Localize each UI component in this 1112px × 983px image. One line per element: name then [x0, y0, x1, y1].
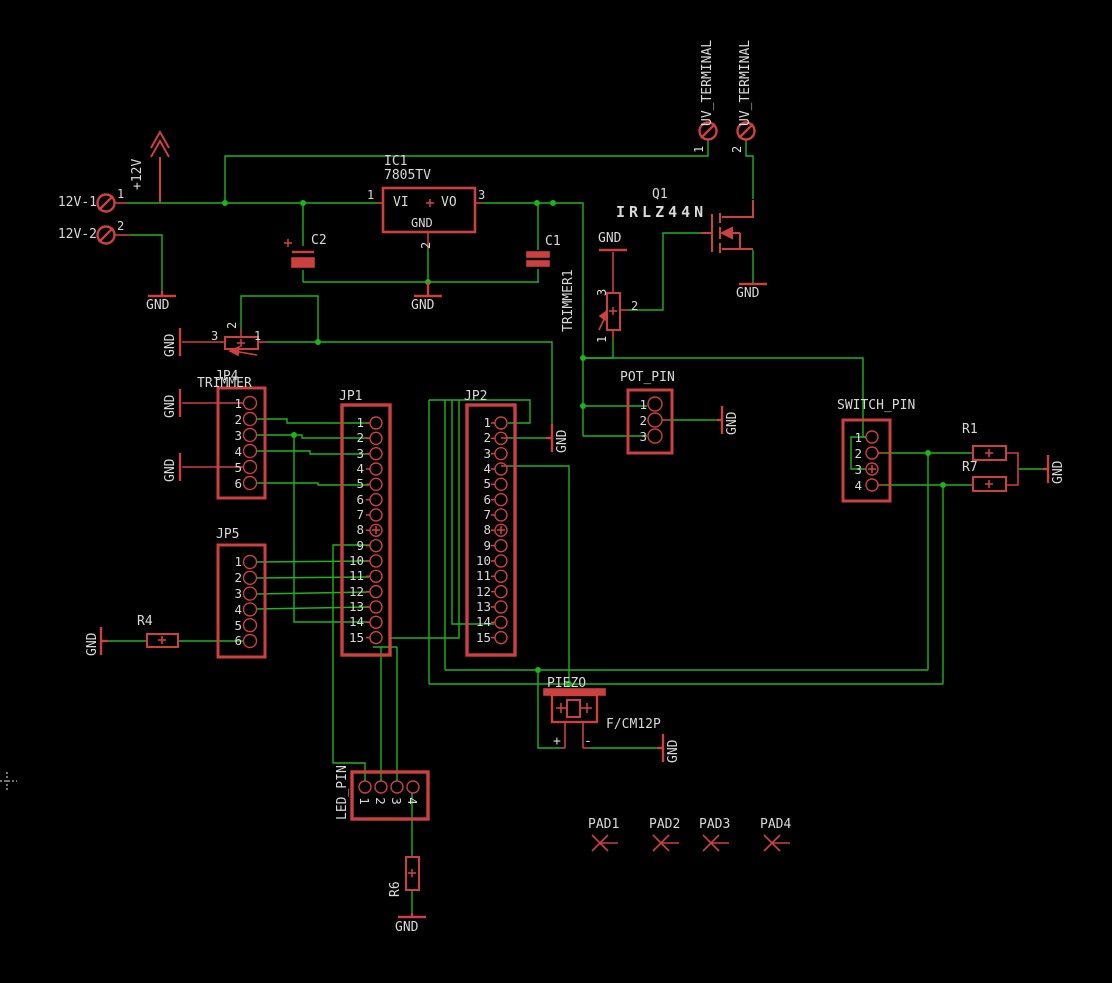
gnd-label: GND: [146, 299, 169, 313]
pin-number: 3: [356, 446, 364, 461]
jp1-name: JP1: [339, 390, 362, 404]
uv-terminal2-pin: 2: [731, 146, 744, 153]
gnd-label: GND: [598, 232, 621, 246]
origin-crosshair: [0, 772, 17, 791]
r1-name: R1: [962, 423, 978, 437]
wires[interactable]: [108, 140, 1043, 913]
pin-number: 6: [234, 475, 242, 491]
gnd-label: GND: [164, 334, 178, 357]
pin-number: 6: [356, 492, 364, 507]
gnd-label: GND: [395, 921, 418, 935]
pin-number: 3: [483, 446, 491, 461]
jp5-name: JP5: [216, 528, 239, 542]
jp4-value: TRIMMER: [197, 377, 252, 391]
jp4-connector[interactable]: [182, 388, 265, 498]
c2-name: C2: [311, 234, 327, 248]
pin-number: 11: [349, 568, 364, 583]
pin-number: 4: [483, 461, 491, 476]
pad1-mark[interactable]: [592, 835, 618, 851]
supply-12v-symbol[interactable]: [151, 132, 169, 203]
r6-resistor[interactable]: [406, 857, 419, 891]
gnd-label: GND: [1052, 461, 1066, 484]
pad3-label: PAD3: [699, 818, 730, 832]
supply-12v-label: +12V: [131, 159, 145, 190]
terminal-12v2-pin: 2: [117, 220, 124, 233]
jp4-pin-numbers: 123456: [226, 395, 242, 491]
r4-resistor[interactable]: [146, 634, 178, 647]
pad4-mark[interactable]: [764, 835, 790, 851]
q1-value: IRLZ44N: [616, 205, 707, 219]
r7-resistor[interactable]: [971, 453, 1018, 491]
pin-number: 1: [483, 415, 491, 430]
c2-capacitor[interactable]: [284, 239, 314, 267]
junction-dots: [222, 200, 946, 687]
jp2-pin-numbers: 123456789101112131415: [471, 415, 491, 645]
terminal-12v2-label: 12V-2: [55, 228, 97, 242]
jp2-name: JP2: [464, 390, 487, 404]
pot-pin-numbers: 123: [633, 396, 647, 444]
ic1-gnd-pin: GND: [411, 217, 433, 230]
jp4-trimmer-pin3-num: 3: [211, 330, 218, 343]
gnd-label: GND: [726, 412, 740, 435]
terminal-12v2[interactable]: [98, 227, 131, 244]
pin-number: 9: [483, 538, 491, 553]
pin-number: 10: [349, 553, 364, 568]
pin-number: 8: [356, 522, 364, 537]
pin-number: 3: [234, 427, 242, 443]
pin-number: 8: [483, 522, 491, 537]
ic1-name: IC1: [384, 155, 407, 169]
pin-number: 5: [234, 459, 242, 475]
pin-number: 13: [476, 599, 491, 614]
r7-name: R7: [962, 461, 978, 475]
pad1-label: PAD1: [588, 818, 619, 832]
pin-number: 1: [234, 395, 242, 411]
pin-number: 10: [476, 553, 491, 568]
pin-number: 14: [476, 614, 491, 629]
pin-number: 4: [356, 461, 364, 476]
trimmer1-pin3-num: 3: [596, 289, 609, 296]
pin-number: 2: [854, 445, 862, 461]
trimmer1-pin2-num: 2: [631, 300, 638, 313]
c1-name: C1: [545, 235, 561, 249]
r6-name: R6: [389, 881, 403, 897]
gnd-label: GND: [736, 287, 759, 301]
pin-number: 6: [234, 633, 242, 649]
pin-number: 1: [234, 554, 242, 570]
gnd-label: GND: [411, 299, 434, 313]
pin-number: 2: [356, 430, 364, 445]
pin-number: 1: [639, 396, 647, 412]
pad2-mark[interactable]: [653, 835, 679, 851]
jp5-pin-numbers: 123456: [226, 554, 242, 649]
gnd-label: GND: [86, 633, 100, 656]
gnd-label: GND: [164, 459, 178, 482]
pin-number: 2: [234, 411, 242, 427]
pin-number: 11: [476, 568, 491, 583]
piezo-value: F/CM12P: [606, 718, 661, 732]
pin-number: 4: [854, 477, 862, 493]
trimmer1-name: TRIMMER1: [562, 269, 576, 332]
pin-number: 6: [483, 492, 491, 507]
pin-number: 12: [349, 584, 364, 599]
terminal-12v1-label: 12V-1: [55, 196, 97, 210]
r1-resistor[interactable]: [971, 446, 1006, 460]
ic1-value: 7805TV: [384, 169, 431, 183]
pin-number: 3: [854, 461, 862, 477]
gnd-label: GND: [667, 740, 681, 763]
uv-terminal1-pin: 1: [693, 146, 706, 153]
pin-number: 15: [349, 630, 364, 645]
uv-terminal2-label: UV_TERMINAL: [739, 40, 753, 126]
gnd-symbols: [101, 250, 1048, 917]
pin-number: 15: [476, 630, 491, 645]
jp4-trimmer-pin2-num: 2: [226, 322, 239, 329]
jp1-pin-numbers: 123456789101112131415: [344, 415, 364, 645]
pin-number: 1: [358, 793, 372, 809]
q1-name: Q1: [652, 188, 668, 202]
piezo-plus-pin: +: [553, 735, 561, 749]
pad2-label: PAD2: [649, 818, 680, 832]
schematic-canvas: 12V-1 12V-2 1 2 +12V GND IC1 7805TV VI V…: [0, 0, 1112, 983]
pin-number: 2: [483, 430, 491, 445]
pin-number: 7: [356, 507, 364, 522]
gnd-label: GND: [164, 395, 178, 418]
pin-number: 4: [234, 601, 242, 617]
piezo-minus-pin: -: [584, 735, 592, 749]
pin-number: 3: [234, 586, 242, 602]
pin-number: 1: [356, 415, 364, 430]
pin-number: 5: [483, 476, 491, 491]
led-pin-numbers: 1234: [357, 794, 421, 808]
pin-number: 5: [356, 476, 364, 491]
pin-number: 1: [854, 429, 862, 445]
pin-number: 2: [639, 412, 647, 428]
ic1-pin1-num: 1: [367, 189, 374, 202]
switch-pin-name: SWITCH_PIN: [837, 399, 915, 413]
pin-number: 3: [639, 428, 647, 444]
pin-number: 7: [483, 507, 491, 522]
ic1-vi-pin: VI: [393, 196, 409, 210]
q1-mosfet[interactable]: [701, 200, 753, 253]
ic1-vo-pin: VO: [441, 196, 457, 210]
led-pin-name: LED_PIN: [336, 765, 350, 820]
pin-number: 2: [374, 793, 388, 809]
pin-number: 2: [234, 570, 242, 586]
uv-terminal1-label: UV_TERMINAL: [701, 40, 715, 126]
pad3-mark[interactable]: [703, 835, 729, 851]
pin-number: 12: [476, 584, 491, 599]
switch-pin-numbers: 1234: [848, 429, 862, 493]
pad4-label: PAD4: [760, 818, 791, 832]
piezo-name: PIEZO: [547, 677, 586, 691]
gnd-label: GND: [556, 430, 570, 453]
r4-name: R4: [137, 615, 153, 629]
pin-number: 5: [234, 617, 242, 633]
ic1-pin2-num: 2: [420, 242, 433, 249]
pin-number: 4: [234, 443, 242, 459]
pin-number: 13: [349, 599, 364, 614]
pot-pin-name: POT_PIN: [620, 371, 675, 385]
pin-number: 3: [390, 793, 404, 809]
pin-number: 14: [349, 614, 364, 629]
pin-number: 9: [356, 538, 364, 553]
pin-number: 4: [406, 793, 420, 809]
terminal-12v1-pin: 1: [117, 188, 124, 201]
ic1-pin3-num: 3: [478, 189, 485, 202]
jp4-trimmer-pin1-num: 1: [254, 330, 261, 343]
c1-capacitor[interactable]: [527, 252, 549, 266]
trimmer1-pin1-num: 1: [596, 336, 609, 343]
